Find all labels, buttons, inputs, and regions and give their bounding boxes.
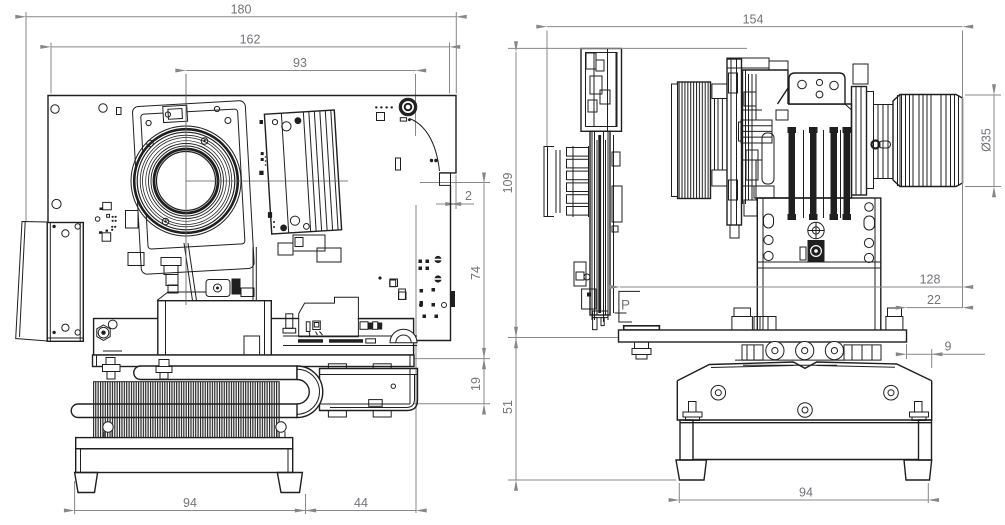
svg-text:9: 9 [945, 340, 952, 354]
svg-text:74: 74 [469, 266, 483, 280]
svg-text:94: 94 [183, 496, 197, 510]
svg-text:51: 51 [501, 400, 515, 414]
svg-text:128: 128 [920, 273, 941, 287]
svg-text:162: 162 [240, 33, 261, 47]
svg-text:154: 154 [743, 13, 764, 27]
svg-text:P: P [621, 298, 630, 313]
svg-text:22: 22 [927, 293, 941, 307]
svg-text:19: 19 [469, 377, 483, 391]
svg-text:Ø35: Ø35 [980, 128, 994, 152]
svg-text:44: 44 [354, 496, 368, 510]
svg-text:109: 109 [501, 173, 515, 194]
svg-text:93: 93 [293, 56, 307, 70]
svg-text:2: 2 [465, 189, 472, 203]
svg-text:180: 180 [231, 3, 252, 17]
svg-text:94: 94 [799, 486, 813, 500]
